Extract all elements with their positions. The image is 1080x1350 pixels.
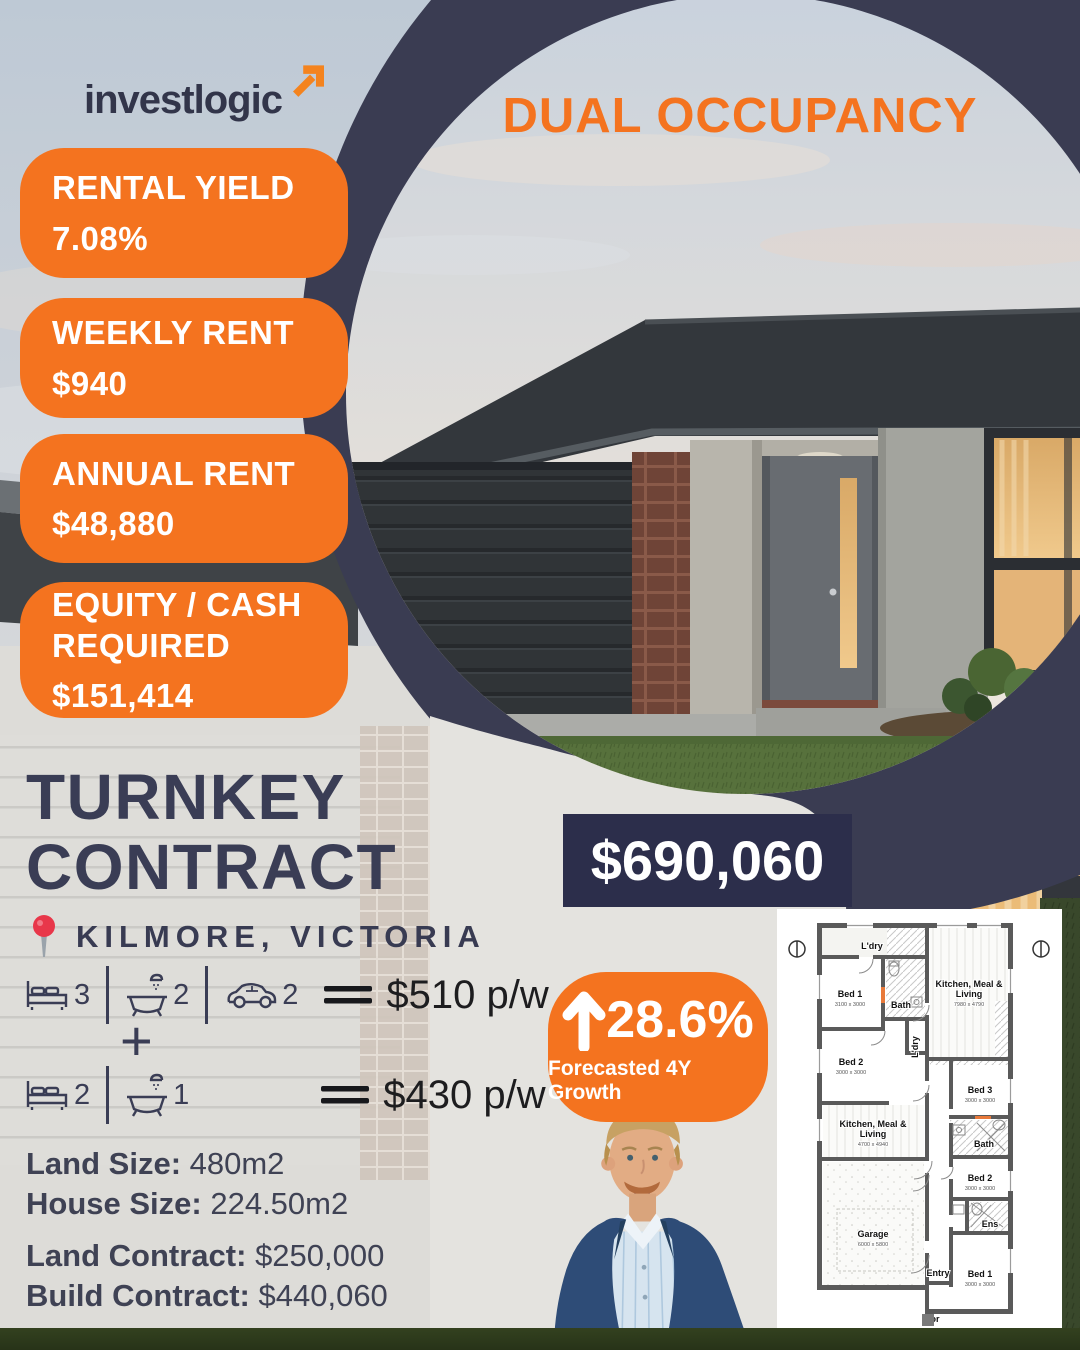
- flyer: investlogic DUAL OCCUPANCY RENTAL YIELD …: [0, 0, 1080, 1350]
- location-text: KILMORE, VICTORIA: [76, 919, 486, 955]
- spec-row-2: 2 1 $430 p/w: [24, 1066, 546, 1124]
- detail-label: House Size:: [26, 1186, 202, 1221]
- room-label: Bed 2: [968, 1173, 993, 1183]
- growth-badge: 28.6% Forecasted 4Y Growth: [548, 972, 768, 1122]
- page-title: TURNKEY CONTRACT: [26, 762, 397, 903]
- stat-value: $151,414: [52, 675, 348, 716]
- bath-count: 1: [173, 1079, 189, 1112]
- detail-house-size: House Size: 224.50m2: [26, 1186, 348, 1222]
- stat-label: ANNUAL RENT: [52, 453, 348, 494]
- room-label: Kitchen, Meal &: [839, 1119, 907, 1129]
- detail-land-contract: Land Contract: $250,000: [26, 1238, 384, 1274]
- car-count: 2: [282, 979, 298, 1012]
- stat-label: WEEKLY RENT: [52, 312, 348, 353]
- room-label: L'dry: [861, 941, 883, 951]
- detail-label: Build Contract:: [26, 1278, 250, 1313]
- room-label: Bed 3: [968, 1085, 993, 1095]
- foreground-grass: [0, 1328, 1080, 1350]
- price-tag: $690,060: [563, 814, 852, 907]
- room-dim: 6000 x 5800: [858, 1242, 888, 1248]
- room-dim: 3000 x 3000: [836, 1070, 866, 1076]
- room-label: Ens: [982, 1219, 999, 1229]
- bath-icon: [125, 1071, 169, 1119]
- room-label: Bed 1: [838, 989, 863, 999]
- room-label: L'dry: [910, 1036, 920, 1058]
- room-label: Living: [860, 1129, 887, 1139]
- title-line-2: CONTRACT: [26, 832, 397, 902]
- room-label: Garage: [857, 1229, 888, 1239]
- room-dim: 4700 x 4940: [858, 1142, 888, 1148]
- divider: [106, 1066, 109, 1124]
- bed-count: 3: [74, 979, 90, 1012]
- brand-logo-text: investlogic: [84, 78, 282, 122]
- stat-value: $940: [52, 363, 348, 404]
- up-arrow-icon: [562, 989, 606, 1051]
- detail-land-size: Land Size: 480m2: [26, 1146, 284, 1182]
- room-label: Kitchen, Meal &: [935, 979, 1003, 989]
- map-pin-icon: [30, 914, 58, 960]
- room-label: Bath: [974, 1139, 994, 1149]
- agent-photo: [550, 1100, 770, 1334]
- floor-plan: L'dry Bed 1 3100 x 3000 Bath Kitchen, Me…: [777, 909, 1062, 1332]
- room-label: Bed 2: [839, 1057, 864, 1067]
- detail-value: 224.50m2: [210, 1186, 348, 1221]
- detail-label: Land Contract:: [26, 1238, 246, 1273]
- room-label: Bed 1: [968, 1269, 993, 1279]
- room-dim: 3100 x 3000: [835, 1002, 865, 1008]
- stat-badge-equity-required: EQUITY / CASH REQUIRED $151,414: [20, 582, 348, 718]
- room-dim: 3000 x 3000: [965, 1098, 995, 1104]
- bath-count: 2: [173, 979, 189, 1012]
- divider: [205, 966, 208, 1024]
- banner-dual-occupancy: DUAL OCCUPANCY: [410, 88, 1070, 144]
- equals-icon: [324, 984, 372, 1006]
- room-label: Living: [956, 989, 983, 999]
- rent-amount: $430 p/w: [383, 1073, 545, 1118]
- brand-logo: investlogic: [84, 78, 344, 138]
- stat-badge-annual-rent: ANNUAL RENT $48,880: [20, 434, 348, 563]
- growth-value: 28.6%: [606, 990, 753, 1050]
- stat-label: EQUITY / CASH REQUIRED: [52, 584, 348, 667]
- detail-build-contract: Build Contract: $440,060: [26, 1278, 388, 1314]
- detail-value: 480m2: [190, 1146, 285, 1181]
- growth-label: Forecasted 4Y Growth: [548, 1057, 768, 1105]
- title-line-1: TURNKEY: [26, 762, 397, 832]
- bed-count: 2: [74, 1079, 90, 1112]
- room-label: Bath: [891, 1000, 911, 1010]
- stat-label: RENTAL YIELD: [52, 167, 348, 208]
- stat-badge-weekly-rent: WEEKLY RENT $940: [20, 298, 348, 418]
- room-dim: 7980 x 4790: [954, 1002, 984, 1008]
- room-dim: 3000 x 3000: [965, 1282, 995, 1288]
- spec-row-1: 3 2 2 $510 p/w: [24, 966, 549, 1024]
- equals-icon: [321, 1084, 369, 1106]
- room-dim: 3000 x 3000: [965, 1186, 995, 1192]
- detail-value: $250,000: [255, 1238, 384, 1273]
- stat-value: $48,880: [52, 503, 348, 544]
- stat-badge-rental-yield: RENTAL YIELD 7.08%: [20, 148, 348, 278]
- bed-icon: [24, 1077, 70, 1113]
- detail-value: $440,060: [259, 1278, 388, 1313]
- rent-amount: $510 p/w: [386, 973, 548, 1018]
- divider: [106, 966, 109, 1024]
- stat-value: 7.08%: [52, 218, 348, 259]
- logo-arrow-icon: [290, 64, 324, 98]
- room-label: Entry: [926, 1268, 949, 1278]
- bed-icon: [24, 977, 70, 1013]
- detail-label: Land Size:: [26, 1146, 181, 1181]
- car-icon: [224, 978, 278, 1012]
- plus-sign: +: [120, 1008, 153, 1073]
- location-row: KILMORE, VICTORIA: [30, 914, 486, 960]
